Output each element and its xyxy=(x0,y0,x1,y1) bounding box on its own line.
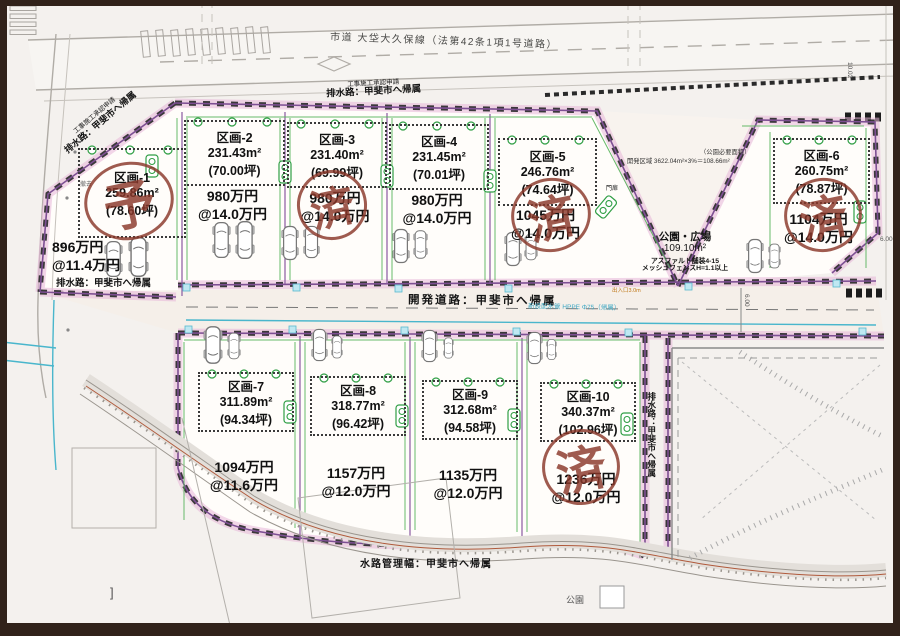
frame-left xyxy=(0,0,7,636)
plot-tsubo: (96.42坪) xyxy=(332,413,384,432)
bottom-park-label: 公園 xyxy=(566,595,584,605)
plot-name: 区画-2 xyxy=(216,127,252,146)
plot-tsubo: (94.58坪) xyxy=(444,417,496,436)
entrance-label: 出入口3.0m xyxy=(612,288,641,294)
plot-name: 区画-5 xyxy=(529,146,565,165)
price-unit: @11.4万円 xyxy=(52,256,182,274)
plot-name: 区画-3 xyxy=(319,129,355,148)
plot-area: 311.89m² xyxy=(220,395,273,409)
plot-area: 260.75m² xyxy=(795,164,849,178)
plot-name: 区画-9 xyxy=(452,384,488,403)
park-name: 公園・広場 xyxy=(639,231,731,243)
frame-top xyxy=(0,0,900,6)
bracket-mark: ] xyxy=(110,586,114,601)
plot-name: 区画-7 xyxy=(228,376,264,395)
park-note-2: メッシュフェンスH=1.1以上 xyxy=(639,265,731,273)
plot-name: 区画-8 xyxy=(340,380,376,399)
price-total: 1094万円 xyxy=(198,458,290,476)
plot-8-card: 区画-8 318.77m² (96.42坪) xyxy=(310,376,406,436)
park-required-title: （公園必要面積） xyxy=(700,149,750,156)
channel-width-label: 水路管理幅：甲斐市へ帰属 xyxy=(360,559,492,571)
price-total: 980万円 xyxy=(389,191,485,209)
dimension-6-road: 6.00 xyxy=(743,294,750,307)
plot-2-card: 区画-2 231.43m² (70.00坪) xyxy=(184,120,285,186)
price-unit: @12.0万円 xyxy=(422,484,514,502)
site-plan-page: 市道 大垈大久保線（法第42条1項1号道路） 工事施工承認申請 排水路：甲斐市へ… xyxy=(0,0,900,636)
plot-area: 318.77m² xyxy=(331,399,385,413)
plot-area: 231.45m² xyxy=(412,150,466,164)
plot-2-price: 980万円 @14.0万円 xyxy=(184,187,281,223)
right-drain-vertical: 排水路：甲斐市へ帰属 xyxy=(646,392,656,512)
plot-area: 340.37m² xyxy=(561,405,615,419)
adjacent-field xyxy=(672,348,884,560)
plot-area: 312.68m² xyxy=(443,403,497,417)
frame-bottom xyxy=(0,623,900,636)
price-unit: @14.0万円 xyxy=(389,209,485,227)
plot-tsubo: (94.34坪) xyxy=(220,409,272,428)
plot-area: 231.43m² xyxy=(208,146,262,160)
park-label: 公園・広場 109.10m² アスファルト舗装4-15 メッシュフェンスH=1.… xyxy=(639,231,731,273)
plot-9-price: 1135万円 @12.0万円 xyxy=(422,466,514,502)
price-total: 980万円 xyxy=(184,187,281,205)
plot-area: 231.40m² xyxy=(310,148,364,162)
plot-7-price: 1094万円 @11.6万円 xyxy=(198,458,290,494)
price-unit: @14.0万円 xyxy=(184,205,281,223)
left-drain-horizontal: 排水路：甲斐市へ帰属 xyxy=(56,279,151,290)
gate-label: 門扉 xyxy=(606,186,618,193)
price-total: 1157万円 xyxy=(310,464,402,482)
dimension-6-right: 6.00 xyxy=(880,236,893,243)
park-area: 109.10m² xyxy=(639,243,731,255)
plot-name: 区画-6 xyxy=(803,145,839,164)
plot-9-card: 区画-9 312.68m² (94.58坪) xyxy=(422,380,518,440)
plot-4-price: 980万円 @14.0万円 xyxy=(389,191,485,227)
plot-tsubo: (70.01坪) xyxy=(413,164,465,183)
plot-1-price: 896万円 @11.4万円 xyxy=(52,238,182,274)
park-required-note: 開発区域 3622.04m²×3%＝108.66m² xyxy=(627,158,730,165)
plot-8-price: 1157万円 @12.0万円 xyxy=(310,464,402,500)
price-unit: @12.0万円 xyxy=(310,482,402,500)
price-unit: @11.6万円 xyxy=(198,476,290,494)
frame-right xyxy=(893,0,900,636)
plot-7-card: 区画-7 311.89m² (94.34坪) xyxy=(198,372,294,432)
plot-name: 区画-4 xyxy=(421,131,457,150)
plot-name: 区画-10 xyxy=(566,386,609,405)
water-pipe-label: 新設配水管 HPPE Φ75（帰属） xyxy=(528,303,620,312)
plot-4-card: 区画-4 231.45m² (70.01坪) xyxy=(389,124,489,190)
plot-tsubo: (70.00坪) xyxy=(208,160,260,179)
dimension-10: 10.02 xyxy=(846,62,853,78)
price-total: 1135万円 xyxy=(422,466,514,484)
